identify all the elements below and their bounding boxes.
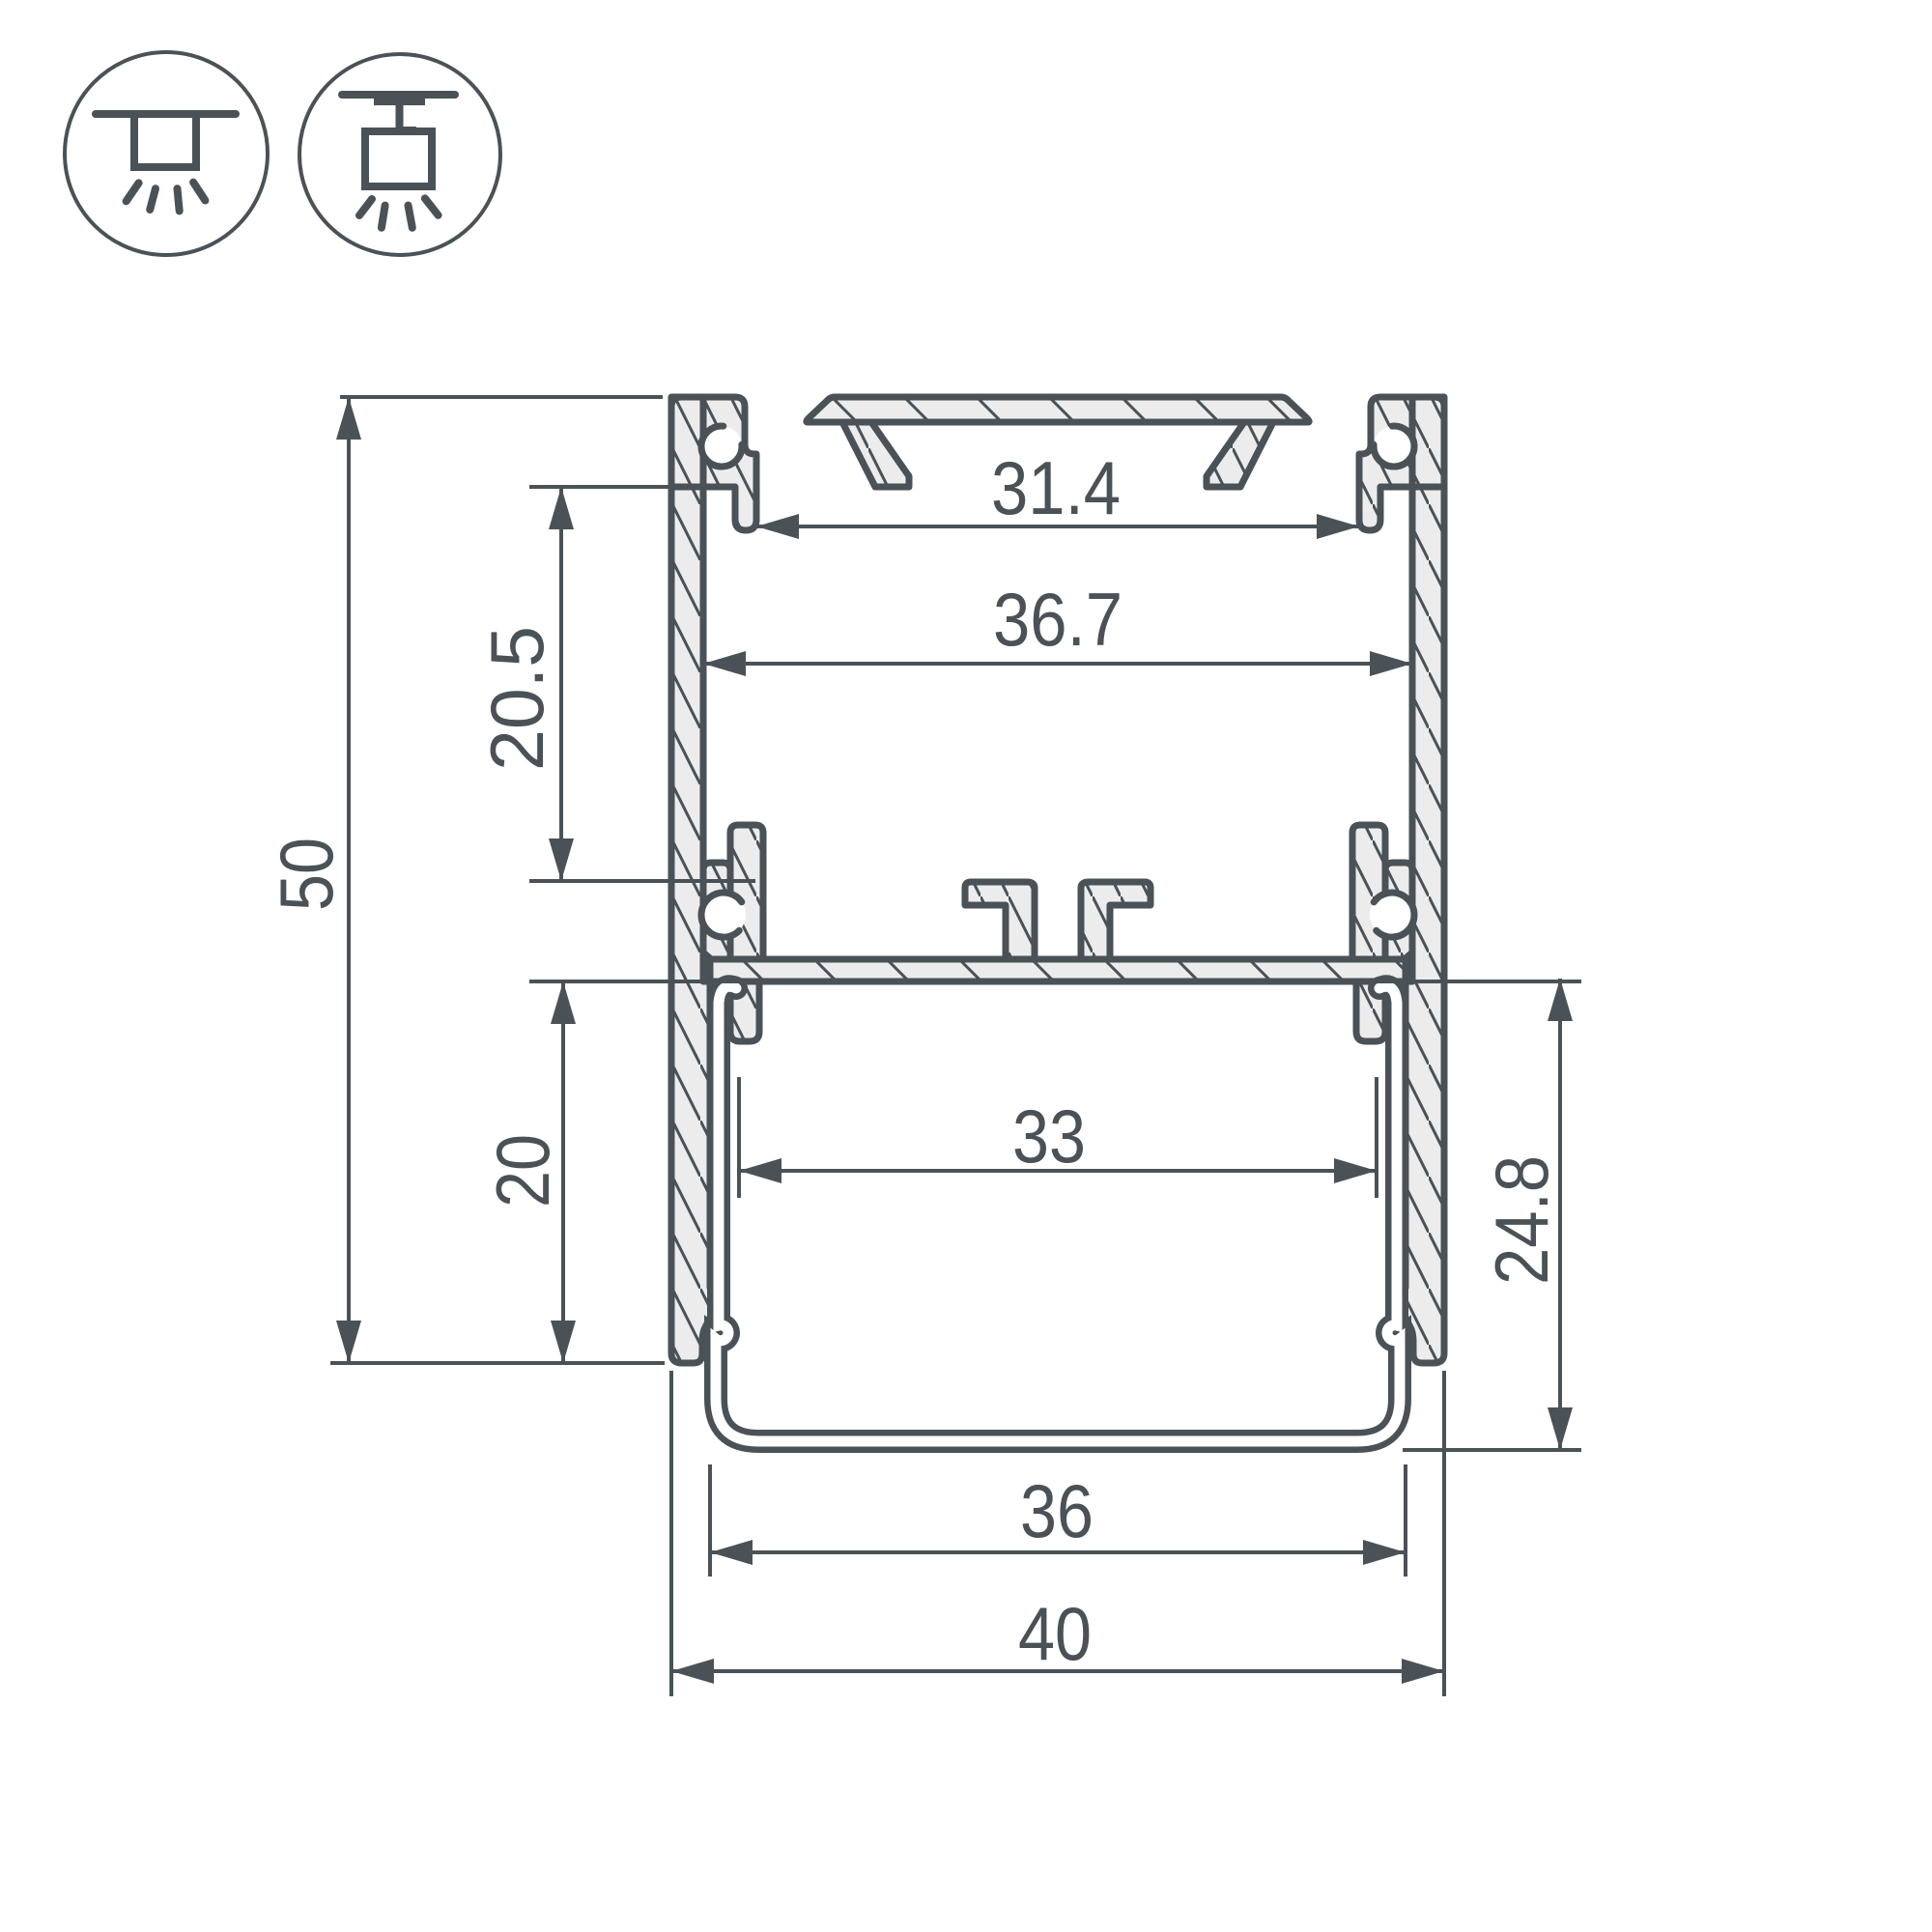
svg-text:40: 40 (1018, 1591, 1092, 1676)
svg-text:20.5: 20.5 (474, 626, 559, 771)
svg-text:31.4: 31.4 (991, 445, 1121, 530)
svg-text:36.7: 36.7 (993, 577, 1122, 662)
svg-text:36: 36 (1020, 1468, 1094, 1553)
svg-text:50: 50 (264, 838, 349, 911)
svg-text:24.8: 24.8 (1479, 1155, 1564, 1285)
svg-text:20: 20 (480, 1134, 565, 1207)
svg-text:33: 33 (1012, 1094, 1086, 1179)
